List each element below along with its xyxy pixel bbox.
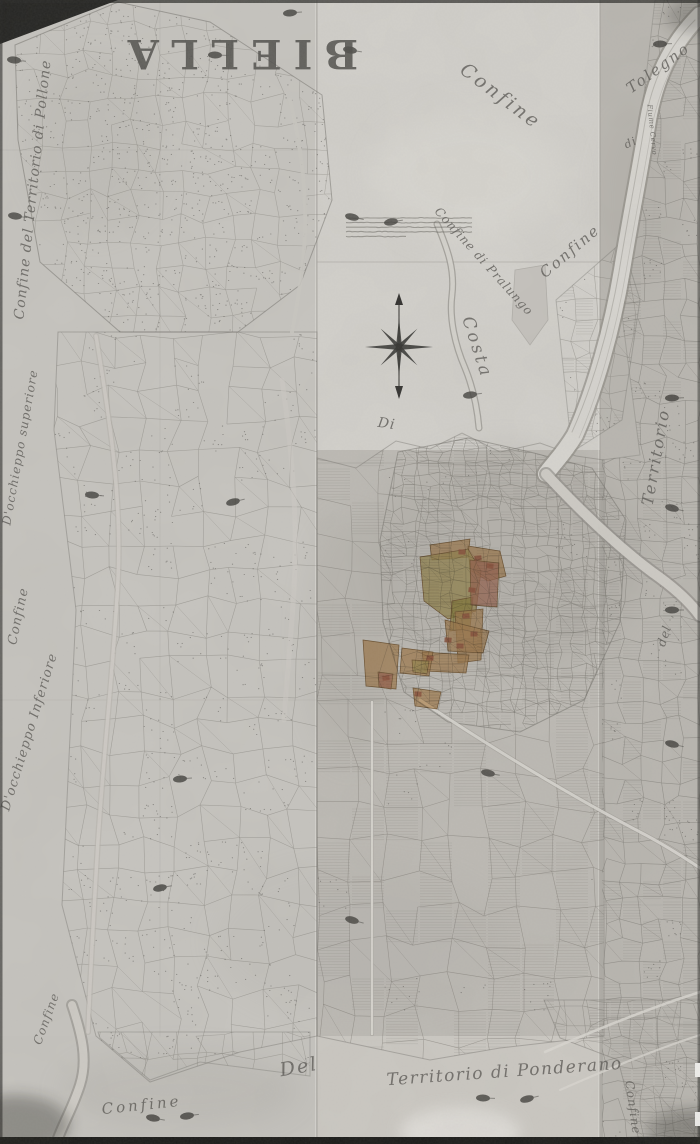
paper-grain-overlay — [0, 0, 700, 1144]
biella-territory-map: BIELLAConfineConfine del Territorio di P… — [0, 0, 700, 1144]
map-scan: BIELLAConfineConfine del Territorio di P… — [0, 0, 700, 1144]
